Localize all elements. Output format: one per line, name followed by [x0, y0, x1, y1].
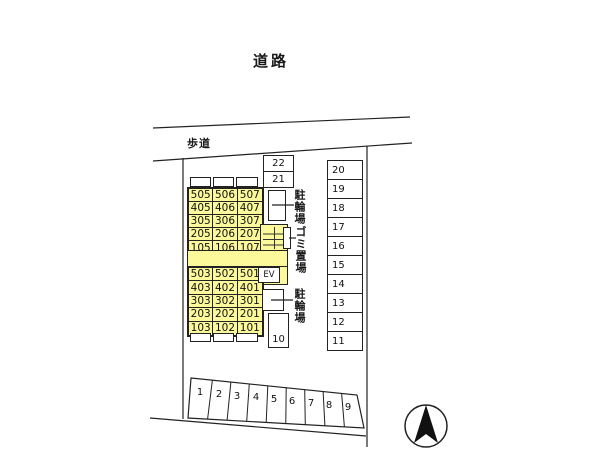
parking-space-8: 8: [326, 400, 332, 411]
parking-space-2: 2: [216, 389, 222, 400]
parking-row-outline: [188, 378, 364, 428]
balcony-strip: [236, 333, 258, 342]
room-cell: 405: [189, 202, 213, 215]
parking-space-7: 7: [308, 398, 314, 409]
room-cell: 302: [213, 295, 237, 308]
elevator-box: EV: [258, 267, 280, 283]
parking-space-19: 19: [327, 179, 363, 199]
room-cell: 403: [189, 281, 213, 294]
parking-space-18: 18: [327, 198, 363, 218]
parking-space-12: 12: [327, 312, 363, 332]
room-cell: 402: [213, 281, 237, 294]
room-cell: 407: [238, 202, 262, 215]
parking-space-21: 21: [263, 171, 294, 188]
parking-space-5: 5: [271, 394, 277, 405]
bicycle-parking-lower-box: [262, 289, 284, 311]
balcony-strip: [190, 333, 211, 342]
compass: [405, 405, 447, 447]
room-cell: 202: [213, 308, 237, 321]
parking-space-1: 1: [197, 387, 203, 398]
parking-space-10: 10: [268, 313, 289, 348]
room-cell: 203: [189, 308, 213, 321]
room-cell: 406: [213, 202, 237, 215]
parking-space-13: 13: [327, 293, 363, 313]
parking-space-11: 11: [327, 331, 363, 351]
room-cell: 505: [189, 189, 213, 202]
parking-space-22: 22: [263, 155, 294, 172]
room-cell: 206: [213, 228, 237, 241]
upper-room-grid: 505 506 507 405 406 407 305 306 307 205 …: [187, 187, 264, 256]
north-arrow-icon: [414, 405, 438, 443]
room-cell: 506: [213, 189, 237, 202]
room-cell: 303: [189, 295, 213, 308]
garbage-area-box: [283, 227, 291, 249]
road-edge-line: [153, 117, 410, 128]
room-cell: 305: [189, 215, 213, 228]
bottom-boundary-line: [150, 418, 366, 436]
parking-space-6: 6: [289, 396, 295, 407]
garbage-area-label: ゴミ置場: [294, 226, 307, 286]
parking-space-16: 16: [327, 236, 363, 256]
bicycle-parking-lower-label: 駐輪場: [293, 288, 306, 332]
room-cell: 502: [213, 268, 237, 281]
room-cell: 503: [189, 268, 213, 281]
room-cell: 307: [238, 215, 262, 228]
room-cell: 306: [213, 215, 237, 228]
room-cell: 301: [238, 295, 262, 308]
stairs-rail: [274, 227, 275, 249]
balcony-strip: [213, 177, 234, 187]
parking-space-15: 15: [327, 255, 363, 275]
bicycle-parking-upper-box: [268, 190, 286, 221]
compass-circle: [405, 405, 447, 447]
room-cell: 207: [238, 228, 262, 241]
parking-space-3: 3: [234, 391, 240, 402]
balcony-strip: [190, 177, 211, 187]
room-cell: 401: [238, 281, 262, 294]
room-cell: 205: [189, 228, 213, 241]
room-cell: 201: [238, 308, 262, 321]
parking-space-17: 17: [327, 217, 363, 237]
lower-room-grid: 503 502 501 403 402 401 303 302 301 203 …: [187, 266, 264, 337]
parking-space-9: 9: [345, 402, 351, 413]
sidewalk-label: 歩道: [187, 135, 211, 151]
site-plan: 道路 歩道 22 21 505 506 507 405 406 407 305 …: [0, 0, 600, 450]
road-label: 道路: [253, 50, 289, 71]
parking-space-14: 14: [327, 274, 363, 294]
bottom-parking-row: 1 2 3 4 5 6 7 8 9: [188, 378, 364, 428]
parking-space-4: 4: [253, 392, 259, 403]
parking-space-20: 20: [327, 160, 363, 180]
balcony-strip: [236, 177, 258, 187]
room-cell: 507: [238, 189, 262, 202]
balcony-strip: [213, 333, 234, 342]
